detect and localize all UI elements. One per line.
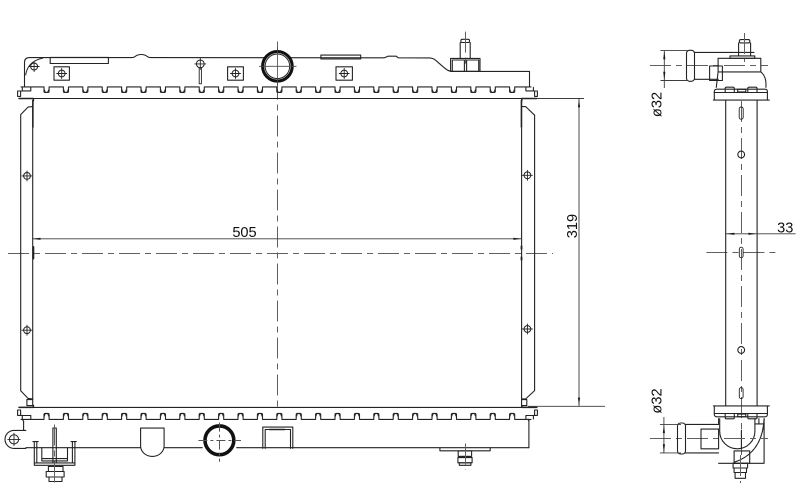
svg-text:ø32: ø32 xyxy=(650,388,666,413)
svg-text:505: 505 xyxy=(232,225,256,241)
svg-text:ø32: ø32 xyxy=(650,92,666,117)
svg-text:319: 319 xyxy=(565,214,581,238)
svg-text:33: 33 xyxy=(777,220,793,236)
